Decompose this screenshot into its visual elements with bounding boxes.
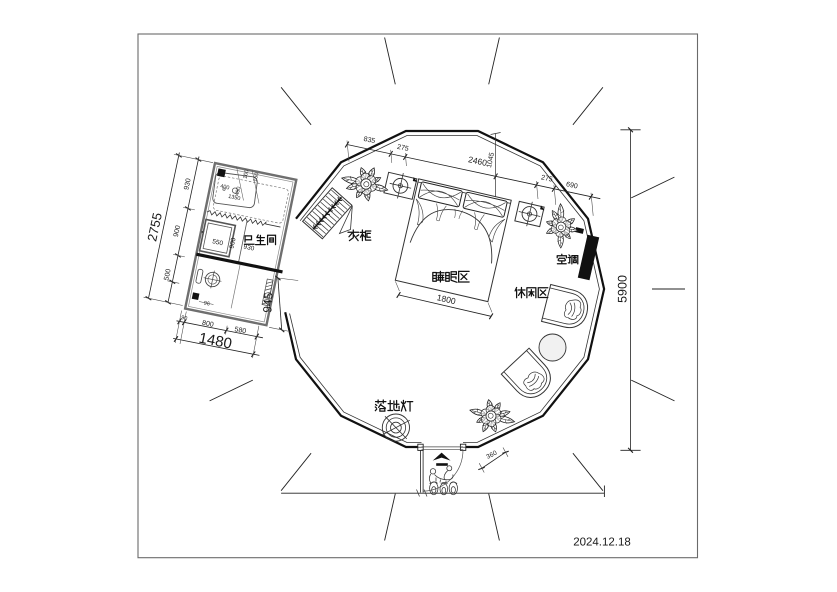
svg-text:945: 945 (260, 292, 275, 313)
svg-text:835: 835 (363, 136, 376, 145)
svg-text:2024.12.18: 2024.12.18 (573, 537, 631, 549)
svg-text:96: 96 (203, 300, 210, 307)
svg-text:930: 930 (183, 178, 192, 191)
svg-text:360: 360 (485, 449, 498, 460)
svg-text:2755: 2755 (144, 211, 165, 242)
svg-text:2460: 2460 (467, 154, 488, 168)
svg-text:5900: 5900 (616, 275, 630, 303)
svg-text:275: 275 (540, 174, 553, 183)
svg-text:800: 800 (201, 320, 214, 329)
svg-text:580: 580 (234, 326, 247, 335)
svg-text:690: 690 (565, 181, 578, 190)
svg-text:275: 275 (396, 144, 409, 153)
svg-text:900: 900 (173, 225, 182, 238)
svg-text:1480: 1480 (197, 330, 233, 353)
svg-text:90: 90 (181, 315, 188, 322)
svg-text:500: 500 (163, 268, 172, 281)
svg-text:1045: 1045 (486, 152, 496, 169)
